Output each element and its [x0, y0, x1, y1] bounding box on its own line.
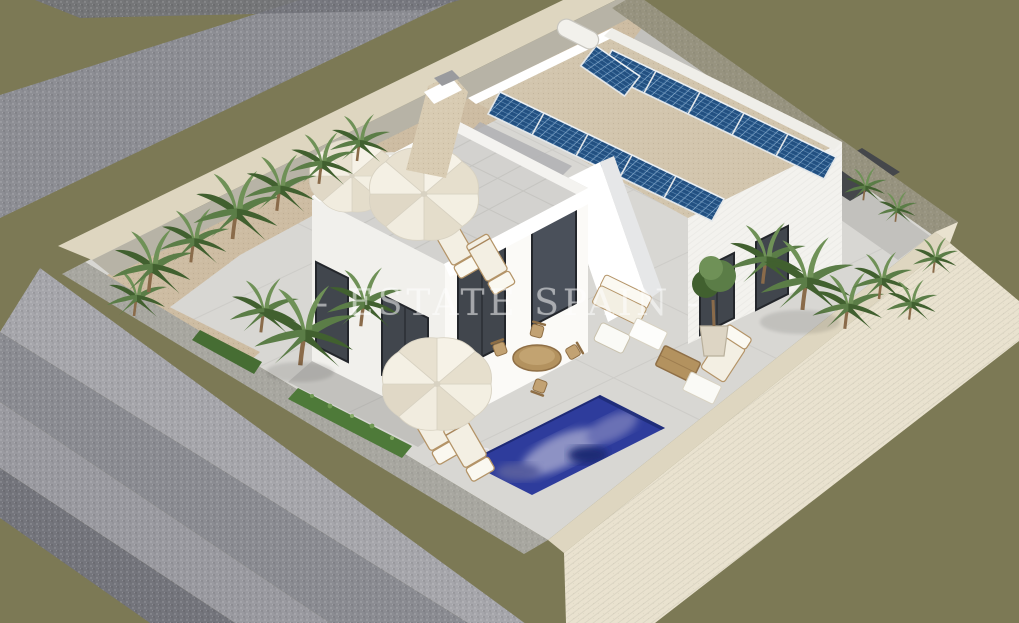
- render-canvas: - ESTATE SPAIN -: [0, 0, 1019, 623]
- villa-render-scene: [0, 0, 1019, 623]
- patio-parasol: [382, 338, 491, 431]
